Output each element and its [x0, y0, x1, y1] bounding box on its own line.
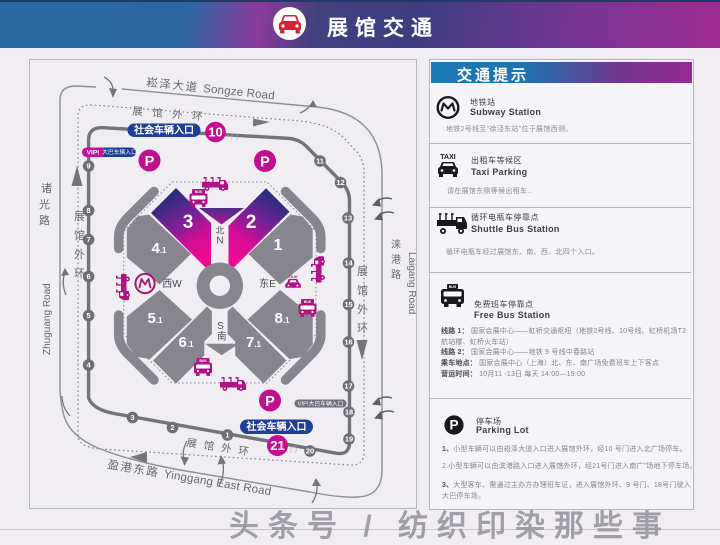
svg-text:P: P [260, 154, 270, 170]
svg-text:8: 8 [87, 206, 91, 215]
svg-text:7: 7 [87, 235, 91, 244]
svg-text:10: 10 [208, 125, 222, 140]
svg-text:TAXI: TAXI [440, 154, 455, 161]
svg-text:西W: 西W [162, 279, 182, 290]
svg-text:北: 北 [216, 226, 225, 236]
svg-text:6: 6 [87, 272, 91, 281]
svg-text:16: 16 [344, 338, 352, 347]
svg-text:2: 2 [246, 212, 257, 233]
svg-text:社会车辆入口: 社会车辆入口 [133, 124, 194, 137]
svg-text:3: 3 [130, 413, 134, 422]
svg-text:18: 18 [345, 408, 353, 417]
svg-text:12: 12 [336, 178, 344, 187]
svg-text:13: 13 [344, 214, 352, 223]
svg-text:20: 20 [306, 447, 314, 456]
svg-text:Laigang Road: Laigang Road [406, 252, 416, 314]
svg-text:展馆外环: 展馆外环 [132, 105, 213, 124]
svg-text:2: 2 [170, 423, 174, 432]
svg-text:5: 5 [87, 311, 91, 320]
svg-text:Zhuguang Road: Zhuguang Road [42, 283, 53, 355]
svg-text:3: 3 [183, 212, 194, 233]
svg-text:11: 11 [316, 157, 324, 166]
svg-text:14: 14 [344, 259, 353, 268]
svg-text:展馆外环: 展馆外环 [74, 210, 85, 280]
svg-text:1: 1 [225, 431, 229, 440]
svg-text:P: P [265, 394, 275, 410]
svg-text:21: 21 [270, 438, 284, 453]
svg-text:BUS: BUS [449, 285, 457, 289]
svg-text:P: P [145, 154, 155, 170]
svg-text:门: 门 [290, 445, 297, 454]
svg-text:9: 9 [87, 162, 91, 171]
svg-text:15: 15 [344, 300, 352, 309]
svg-text:VIP!: VIP! [87, 149, 100, 156]
svg-text:崧泽大道 Songze Road: 崧泽大道 Songze Road [146, 75, 276, 102]
svg-text:展馆外环: 展馆外环 [357, 265, 368, 335]
svg-text:19: 19 [345, 435, 353, 444]
svg-text:VIP!大巴车辆入口: VIP!大巴车辆入口 [298, 400, 344, 408]
svg-text:1: 1 [274, 237, 283, 254]
svg-text:诸光路: 诸光路 [39, 182, 52, 227]
svg-text:南: 南 [217, 331, 227, 343]
svg-text:盈港东路 Yinggang East Road: 盈港东路 Yinggang East Road [107, 457, 273, 498]
svg-text:S: S [217, 321, 224, 332]
svg-text:东E: 东E [259, 277, 276, 290]
svg-text:大巴车辆入口: 大巴车辆入口 [102, 148, 137, 156]
svg-text:N: N [216, 236, 223, 247]
svg-text:门: 门 [231, 132, 238, 141]
svg-text:17: 17 [344, 382, 352, 391]
svg-text:P: P [449, 418, 458, 433]
svg-text:涞港路: 涞港路 [391, 239, 401, 281]
svg-text:社会车辆入口: 社会车辆入口 [246, 420, 307, 433]
